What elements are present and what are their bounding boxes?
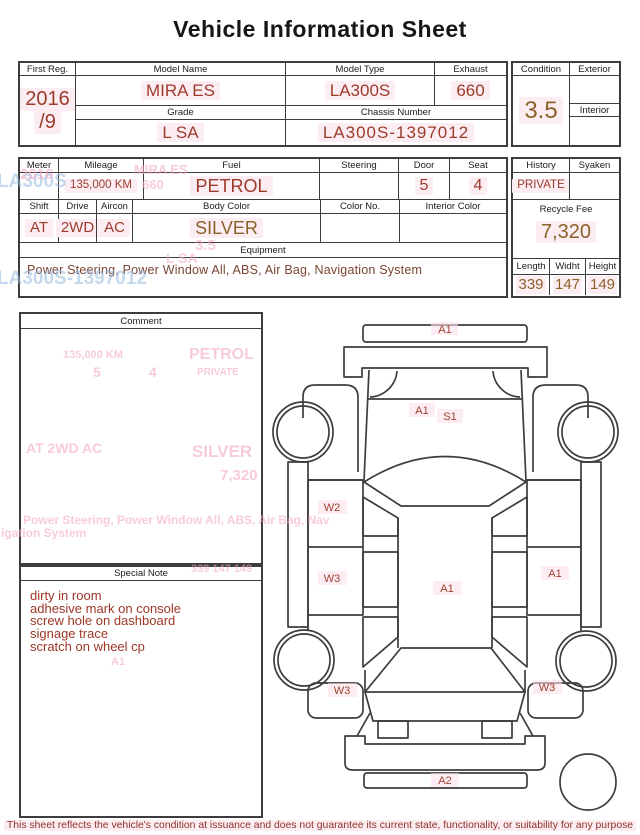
condition-score: 3.5: [513, 75, 569, 145]
seat-header: Seat: [449, 159, 506, 172]
model-name-header: Model Name: [75, 63, 285, 75]
label-wheel-rear-right: W3: [539, 682, 556, 694]
special-note-lines: dirty in room adhesive mark on console s…: [21, 581, 261, 654]
chassis-header: Chassis Number: [285, 105, 506, 119]
label-hood-s1: S1: [443, 411, 456, 423]
color-no-header: Color No.: [320, 200, 399, 213]
special-note-header: Special Note: [21, 567, 261, 581]
label-front-bumper: A1: [438, 324, 451, 336]
grade-header: Grade: [75, 105, 285, 119]
footer-text: This sheet reflects the vehicle's condit…: [4, 820, 636, 831]
meter-value-empty: [20, 172, 58, 199]
exterior-header: Exterior: [569, 63, 619, 75]
height-value: 149: [585, 274, 619, 295]
meter-header: Meter: [20, 159, 58, 172]
grade-value: L SA: [75, 119, 285, 145]
exterior-value-empty: [569, 75, 619, 103]
page-title: Vehicle Information Sheet: [0, 16, 640, 43]
seat-value: 4: [449, 172, 506, 199]
shift-header: Shift: [20, 200, 58, 213]
height-header: Height: [585, 259, 619, 274]
interior-color-value-empty: [399, 213, 506, 242]
label-rear-bumper: A2: [438, 775, 451, 787]
exhaust-header: Exhaust: [434, 63, 506, 75]
steering-header: Steering: [319, 159, 398, 172]
spec-table: Meter Mileage Fuel Steering Door Seat 13…: [18, 157, 508, 298]
interior-color-header: Interior Color: [399, 200, 506, 213]
label-door-rear-right: A1: [548, 568, 561, 580]
body-color-header: Body Color: [132, 200, 320, 213]
door-header: Door: [398, 159, 449, 172]
condition-panel: Condition Exterior 3.5 Interior: [511, 61, 621, 147]
model-name-value: MIRA ES: [75, 75, 285, 105]
history-panel: History Syaken PRIVATE Recycle Fee 7,320…: [511, 157, 621, 298]
length-header: Length: [513, 259, 549, 274]
footer-disclaimer: This sheet reflects the vehicle's condit…: [0, 820, 640, 832]
car-top-view-diagram: A1 A1 S1 W2 W3 A1 A1 W3 W3 A2: [275, 315, 620, 812]
recycle-fee-cell: Recycle Fee 7,320: [513, 199, 619, 258]
spare-circle: [560, 754, 616, 810]
fuel-value: PETROL: [143, 172, 319, 199]
special-note-line: scratch on wheel cp: [30, 641, 261, 654]
body-color-value: SILVER: [132, 213, 320, 242]
label-wheel-rear-left: W3: [334, 685, 351, 697]
comment-box: Comment: [19, 312, 263, 565]
recycle-fee-value: 7,320: [536, 221, 596, 244]
first-reg-month: /9: [34, 111, 61, 134]
width-value: 147: [549, 274, 585, 295]
door-value: 5: [398, 172, 449, 199]
drive-header: Drive: [58, 200, 96, 213]
steering-value-empty: [319, 172, 398, 199]
label-hood: A1: [415, 405, 428, 417]
equipment-value: Power Steering, Power Window All, ABS, A…: [20, 258, 506, 277]
chassis-value: LA300S-1397012: [285, 119, 506, 145]
shift-value: AT: [20, 213, 58, 242]
special-note-box: Special Note dirty in room adhesive mark…: [19, 565, 263, 818]
first-reg-value: 2016 /9: [20, 75, 75, 145]
mileage-header: Mileage: [58, 159, 143, 172]
drive-value: 2WD: [58, 213, 96, 242]
first-reg-year: 2016: [20, 88, 75, 111]
recycle-fee-header: Recycle Fee: [540, 204, 593, 215]
syaken-header: Syaken: [569, 159, 619, 172]
fuel-header: Fuel: [143, 159, 319, 172]
interior-header: Interior: [569, 103, 619, 116]
mileage-value: 135,000 KM: [58, 172, 143, 199]
aircon-value: AC: [96, 213, 132, 242]
exhaust-value: 660: [434, 75, 506, 105]
history-header: History: [513, 159, 569, 172]
label-roof: A1: [440, 583, 453, 595]
aircon-header: Aircon: [96, 200, 132, 213]
history-value: PRIVATE: [513, 172, 569, 199]
vehicle-information-sheet: Vehicle Information Sheet First Reg. Mod…: [0, 0, 640, 835]
model-type-value: LA300S: [285, 75, 434, 105]
label-door-front-left: W2: [324, 502, 341, 514]
condition-header: Condition: [513, 63, 569, 75]
color-no-value-empty: [320, 213, 399, 242]
label-door-rear-left: W3: [324, 573, 341, 585]
interior-value-empty: [569, 116, 619, 145]
equipment-header: Equipment: [20, 243, 506, 258]
width-header: Widht: [549, 259, 585, 274]
model-type-header: Model Type: [285, 63, 434, 75]
length-value: 339: [513, 274, 549, 295]
first-reg-header: First Reg.: [20, 63, 75, 75]
syaken-value-empty: [569, 172, 619, 199]
model-table: First Reg. Model Name Model Type Exhaust…: [18, 61, 508, 147]
comment-header: Comment: [21, 314, 261, 329]
